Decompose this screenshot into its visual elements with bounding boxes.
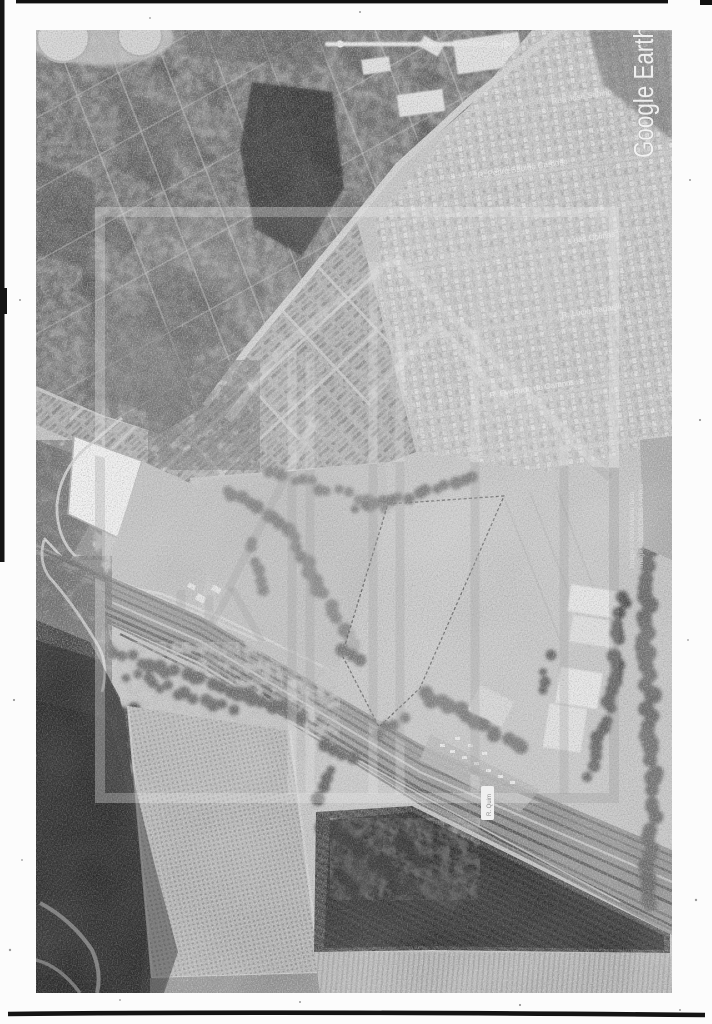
svg-text:Image © 2020 CNES / Airbus: Image © 2020 CNES / Airbus [637, 483, 645, 568]
svg-text:R. Quim: R. Quim [487, 794, 493, 816]
svg-text:Google Earth: Google Earth [628, 26, 659, 158]
svg-text:Image © 2020 Maxar Tech: Image © 2020 Maxar Tech [628, 491, 636, 568]
